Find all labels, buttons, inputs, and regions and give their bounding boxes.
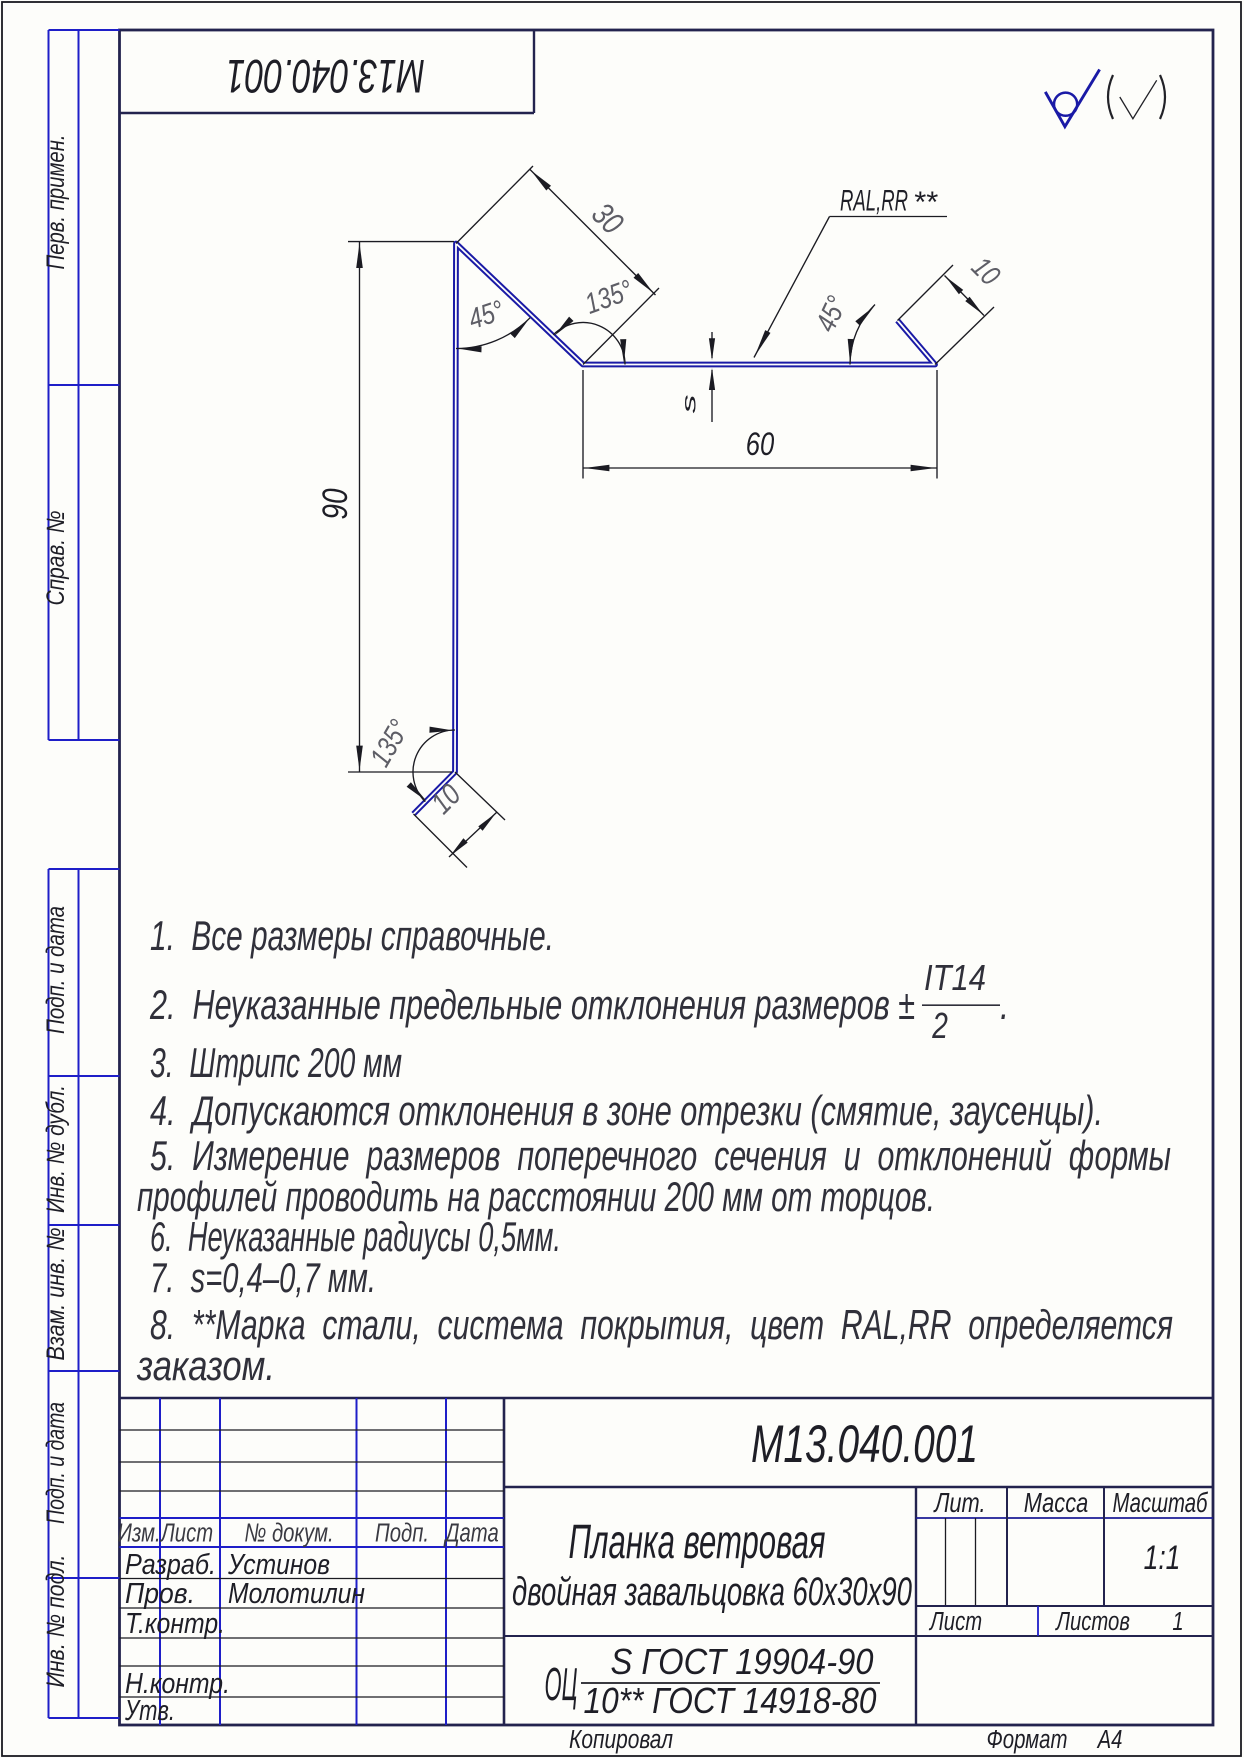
svg-text:.: . <box>1000 981 1009 1028</box>
svg-text:RAL,RR: RAL,RR <box>840 183 908 217</box>
svg-text:2: 2 <box>931 1006 948 1046</box>
svg-text:№ докум.: № докум. <box>244 1518 333 1547</box>
svg-text:60: 60 <box>746 427 774 462</box>
svg-text:А4: А4 <box>1096 1725 1123 1754</box>
svg-text:Взам. инв. №: Взам. инв. № <box>42 1228 70 1361</box>
svg-text:**: ** <box>913 185 939 219</box>
svg-text:Планка ветровая: Планка ветровая <box>568 1516 825 1570</box>
svg-text:Изм.: Изм. <box>117 1518 160 1547</box>
svg-text:2. Неуказанные предельные отк: 2. Неуказанные предельные отклонения раз… <box>149 981 915 1028</box>
svg-text:Подп.: Подп. <box>375 1518 429 1547</box>
svg-text:1: 1 <box>1172 1607 1183 1636</box>
svg-text:Подп. и дата: Подп. и дата <box>42 906 70 1034</box>
svg-text:Листов: Листов <box>1054 1607 1130 1636</box>
svg-text:Масса: Масса <box>1024 1487 1089 1518</box>
svg-text:IT14: IT14 <box>924 958 986 998</box>
svg-text:Масштаб: Масштаб <box>1112 1487 1208 1518</box>
svg-text:М13.040.001: М13.040.001 <box>751 1414 978 1474</box>
svg-text:Лист: Лист <box>928 1607 982 1636</box>
svg-text:5. Измерение размеров попер: 5. Измерение размеров поперечного сечени… <box>150 1132 1171 1179</box>
svg-text:Подп. и дата: Подп. и дата <box>42 1402 70 1524</box>
svg-text:Перв. примен.: Перв. примен. <box>42 134 70 269</box>
svg-text:ОЦ: ОЦ <box>545 1659 578 1710</box>
svg-text:заказом.: заказом. <box>136 1342 275 1389</box>
svg-text:Т.контр.: Т.контр. <box>125 1606 225 1639</box>
svg-text:1. Все размеры справочные.: 1. Все размеры справочные. <box>150 912 554 959</box>
svg-text:s: s <box>678 395 700 414</box>
svg-text:1:1: 1:1 <box>1144 1539 1181 1577</box>
svg-text:Пров.: Пров. <box>125 1576 195 1609</box>
svg-text:Лист: Лист <box>159 1518 213 1547</box>
svg-text:Лит.: Лит. <box>933 1487 986 1518</box>
svg-text:Формат: Формат <box>987 1725 1068 1754</box>
svg-text:3. Штрипс 200 мм: 3. Штрипс 200 мм <box>150 1039 402 1086</box>
svg-text:Молотилин: Молотилин <box>228 1576 365 1609</box>
svg-text:Дата: Дата <box>443 1518 499 1547</box>
svg-text:10** ГОСТ 14918-80: 10** ГОСТ 14918-80 <box>584 1681 877 1721</box>
svg-text:двойная завальцовка 60х30х90: двойная завальцовка 60х30х90 <box>512 1569 912 1614</box>
svg-text:90: 90 <box>315 488 355 519</box>
svg-text:7. s=0,4–0,7 мм.: 7. s=0,4–0,7 мм. <box>150 1254 376 1301</box>
svg-text:Инв. № дубл.: Инв. № дубл. <box>42 1085 70 1213</box>
svg-text:6. Неуказанные радиусы 0,5мм.: 6. Неуказанные радиусы 0,5мм. <box>150 1213 561 1260</box>
svg-text:Инв. № подл.: Инв. № подл. <box>42 1555 70 1688</box>
svg-text:Справ. №: Справ. № <box>42 510 70 605</box>
svg-text:Утв.: Утв. <box>124 1693 175 1726</box>
svg-text:М13.040.001: М13.040.001 <box>226 50 425 103</box>
svg-text:4. Допускаются отклонения в з: 4. Допускаются отклонения в зоне отрезки… <box>150 1087 1103 1134</box>
svg-text:Копировал: Копировал <box>569 1725 673 1754</box>
svg-text:S ГОСТ 19904-90: S ГОСТ 19904-90 <box>610 1642 873 1682</box>
svg-text:8. **Марка стали, система: 8. **Марка стали, система покрытия, цвет… <box>150 1301 1173 1348</box>
